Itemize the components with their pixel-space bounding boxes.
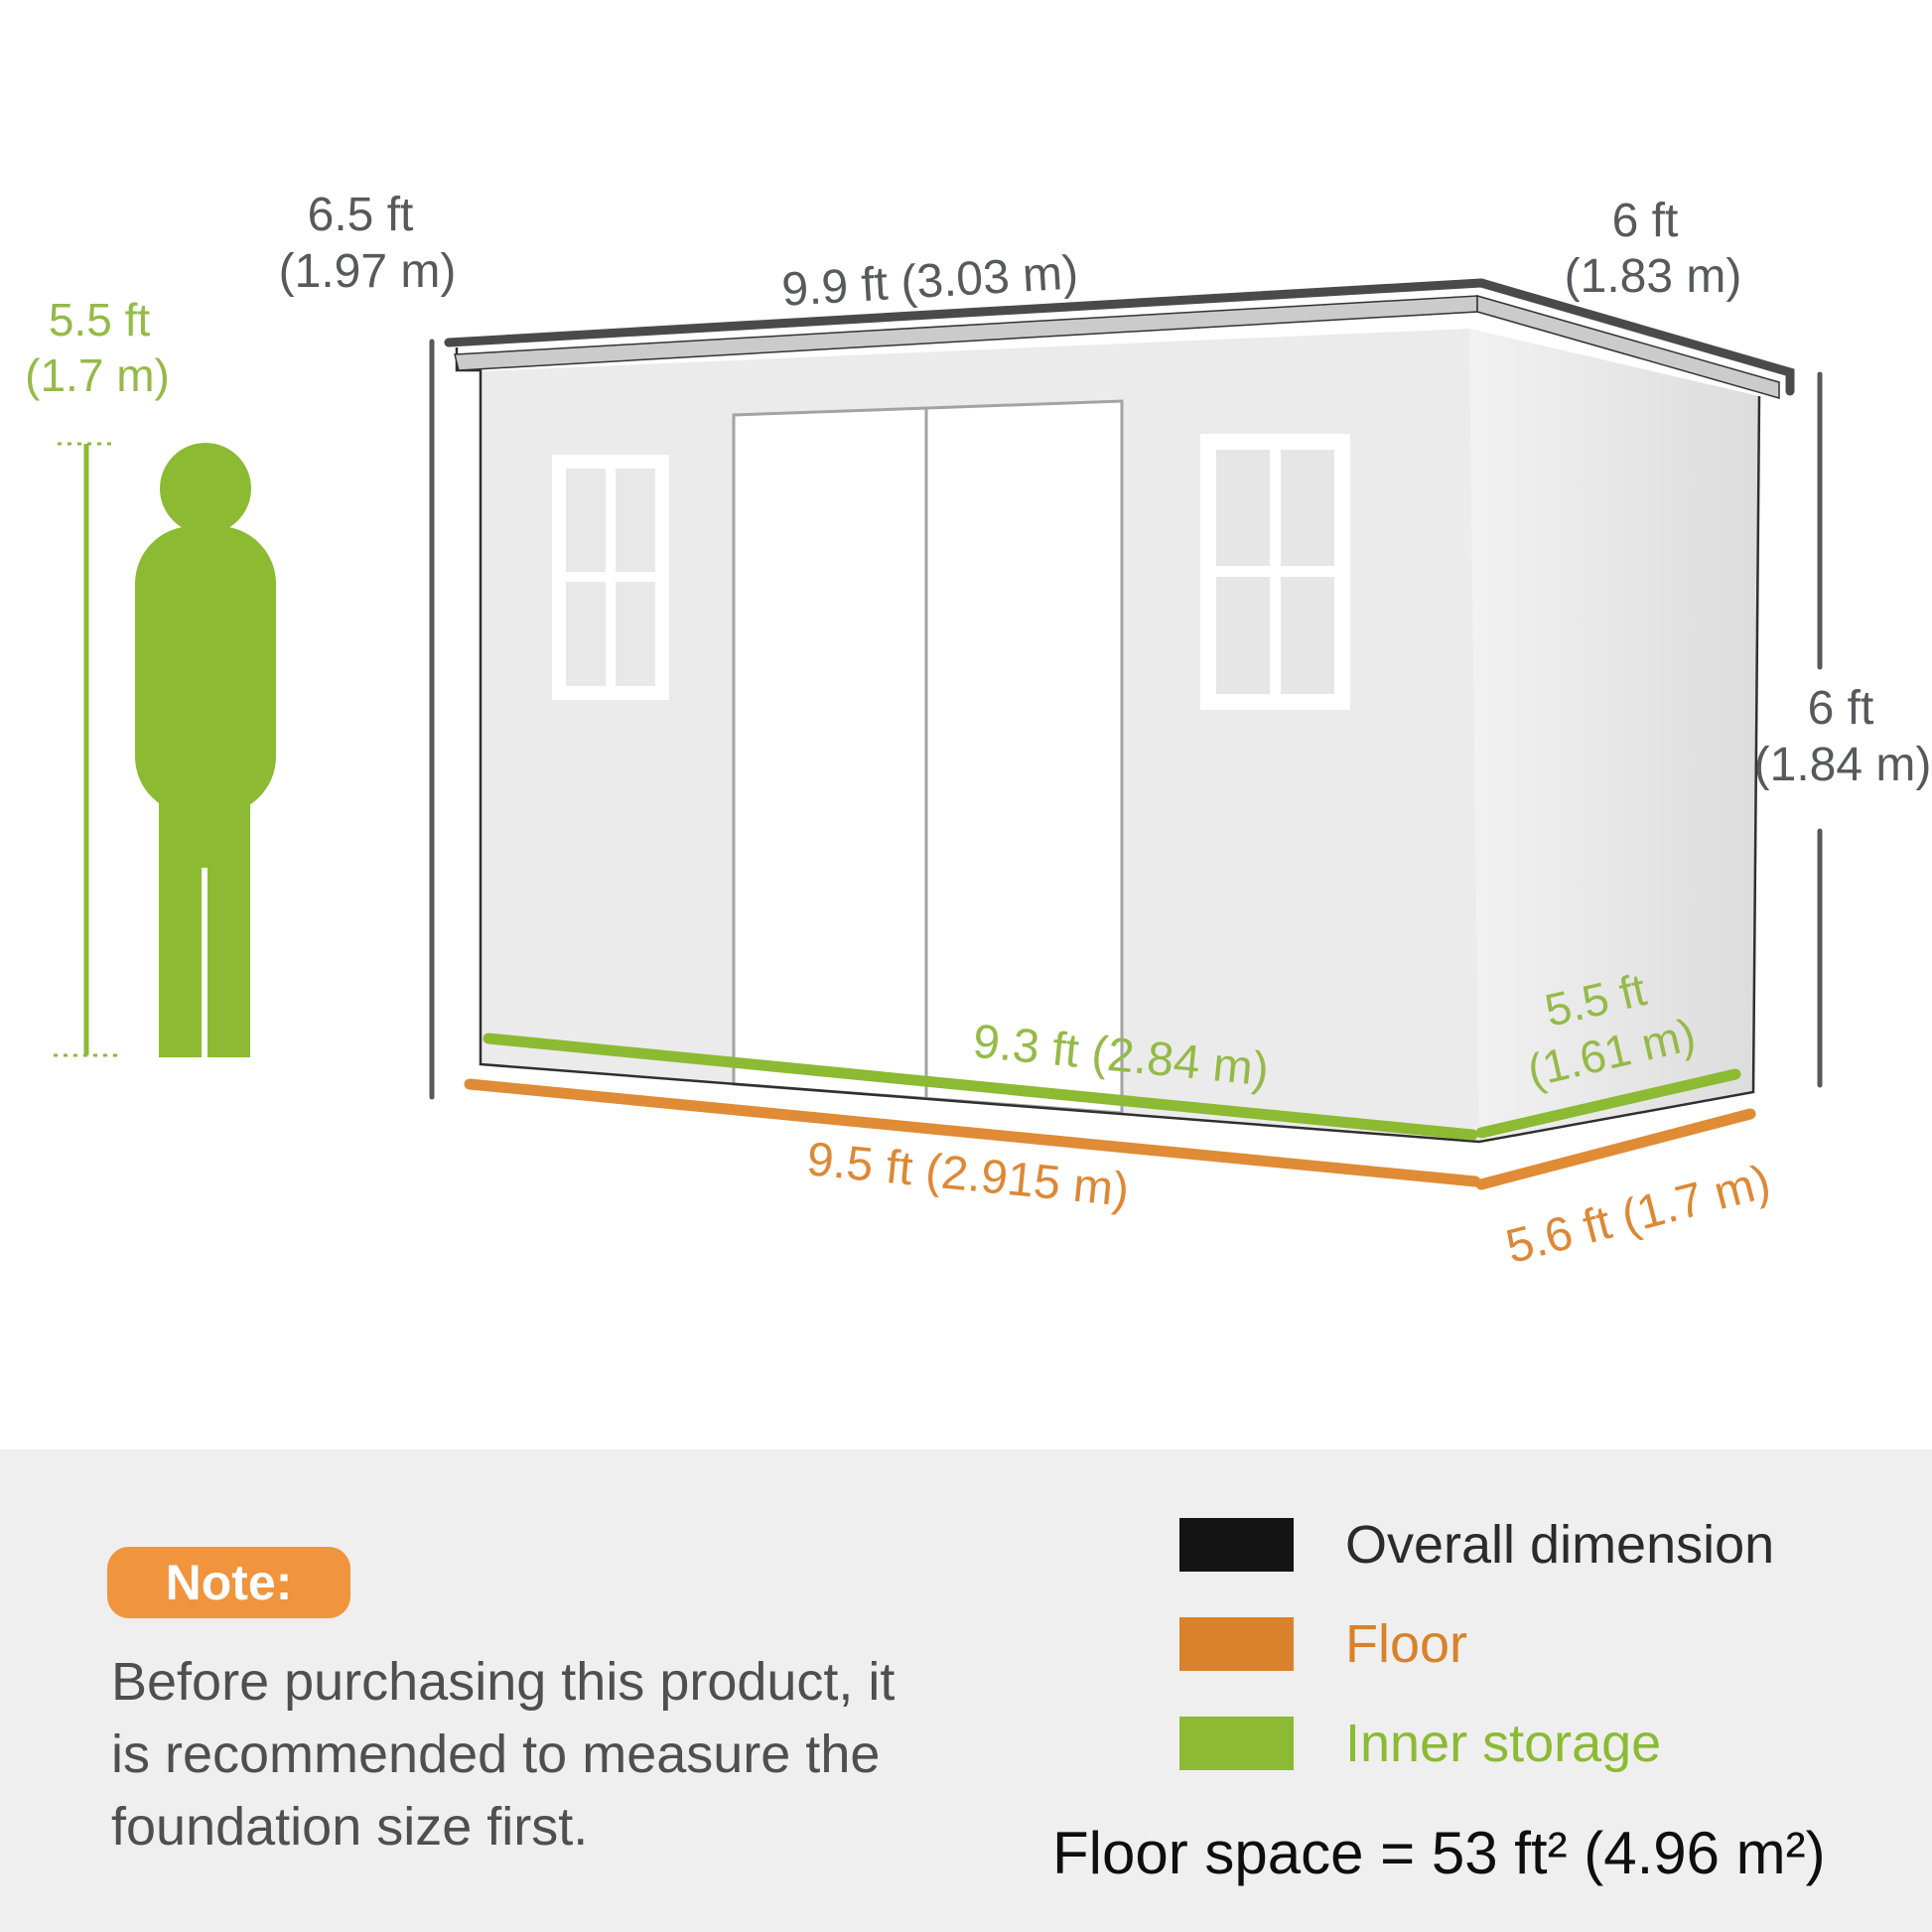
note-line-2: is recommended to measure the: [111, 1719, 895, 1791]
legend-row-inner-storage: Inner storage: [1179, 1713, 1661, 1774]
note-section: Note: Before purchasing this product, it…: [0, 1449, 1932, 1932]
label-figure-height-ft: 5.5 ft: [49, 294, 151, 345]
label-left-height-m: (1.97 m): [279, 245, 457, 298]
legend-label-overall: Overall dimension: [1345, 1514, 1774, 1576]
legend-label-inner-storage: Inner storage: [1345, 1713, 1661, 1774]
overall-dimension-swatch: [1179, 1518, 1294, 1572]
sliding-door: [734, 401, 1122, 1113]
legend-row-floor: Floor: [1179, 1613, 1467, 1675]
window-left: [552, 455, 669, 700]
note-line-3: foundation size first.: [111, 1791, 895, 1863]
label-roof-side-m: (1.83 m): [1565, 250, 1742, 303]
legend-label-floor: Floor: [1345, 1613, 1467, 1675]
label-right-height-m: (1.84 m): [1754, 739, 1932, 791]
note-line-1: Before purchasing this product, it: [111, 1646, 895, 1719]
note-text: Before purchasing this product, it is re…: [111, 1646, 895, 1863]
legend-row-overall: Overall dimension: [1179, 1514, 1774, 1576]
shed-dimensions-infographic: 5.5 ft (1.7 m) 6.5 ft (1.97 m) 9.9 ft (3…: [0, 0, 1932, 1932]
floor-swatch: [1179, 1617, 1294, 1671]
shed-dimension-diagram: 5.5 ft (1.7 m) 6.5 ft (1.97 m) 9.9 ft (3…: [0, 0, 1932, 1449]
label-right-height-ft: 6 ft: [1808, 682, 1874, 735]
inner-storage-swatch: [1179, 1717, 1294, 1770]
floor-space-text: Floor space = 53 ft² (4.96 m²): [1052, 1819, 1826, 1887]
person-silhouette: [135, 443, 276, 1057]
label-left-height-ft: 6.5 ft: [308, 189, 414, 241]
window-right: [1200, 434, 1350, 710]
legend: Overall dimension Floor Inner storage: [1179, 1449, 1894, 1787]
label-roof-side-ft: 6 ft: [1612, 195, 1679, 247]
note-badge: Note:: [107, 1547, 350, 1618]
person-height-line: [54, 444, 119, 1055]
label-figure-height-m: (1.7 m): [25, 349, 170, 401]
